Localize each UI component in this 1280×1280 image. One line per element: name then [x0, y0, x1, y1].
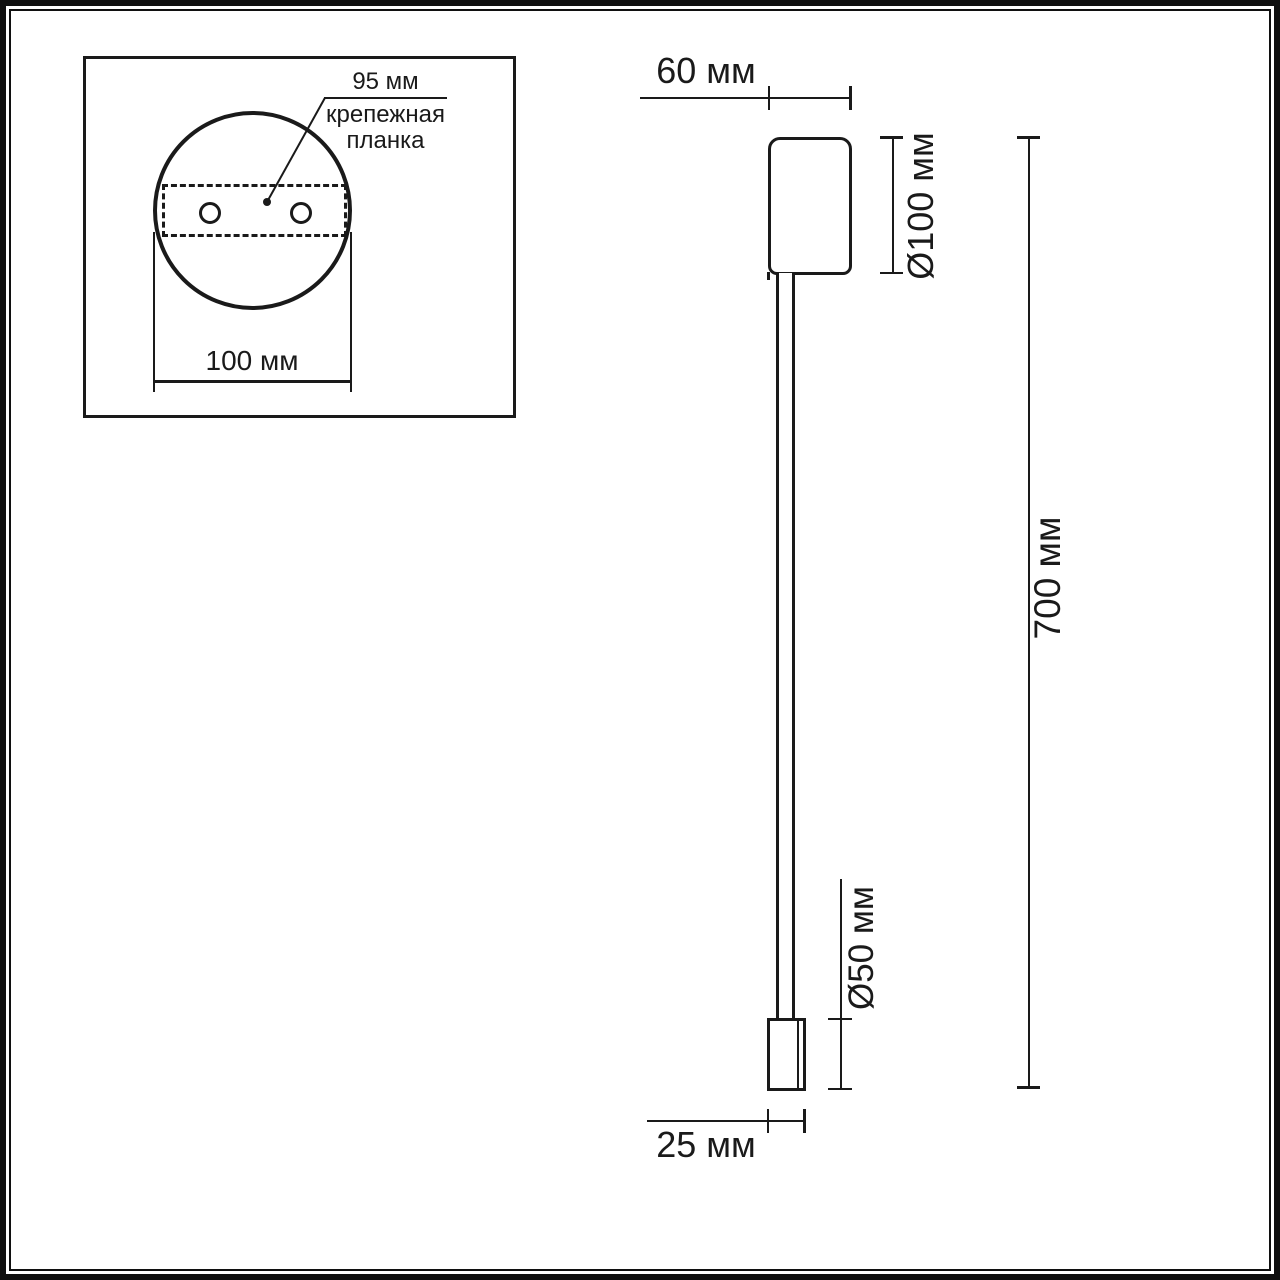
dim-total-height-tick-top — [1017, 136, 1040, 139]
screw-hole-left — [199, 202, 221, 224]
dim-top-depth-line — [640, 97, 851, 100]
dim-head-diameter-line — [892, 137, 894, 274]
screw-hole-right — [290, 202, 312, 224]
dim-top-depth-tick-right — [849, 86, 852, 110]
dim-total-height-tick-bottom — [1017, 1086, 1040, 1089]
dim-total-height-label: 700 мм — [1029, 478, 1067, 678]
mounting-bar-caption: крепежная планка — [312, 102, 459, 155]
dim-tip-width-tick-right — [803, 1109, 806, 1133]
dim-plate-width-line — [153, 380, 351, 383]
mounting-bar-dashed-outline — [162, 184, 347, 237]
dim-top-depth-tick-left — [768, 86, 771, 110]
lamp-head-lip — [767, 272, 770, 280]
lamp-head — [768, 137, 852, 275]
dim-tip-diameter-tick-bottom — [828, 1088, 852, 1091]
mounting-bar-caption-line2: планка — [312, 128, 459, 154]
dim-head-diameter-label: Ø100 мм — [902, 121, 940, 291]
lamp-rod — [776, 273, 795, 1020]
dim-plate-width-label: 100 мм — [153, 347, 351, 375]
dim-tip-width-line — [647, 1120, 805, 1123]
lamp-tip-edge-line — [797, 1021, 800, 1088]
dim-top-depth-label: 60 мм — [611, 53, 801, 89]
lamp-tip — [767, 1018, 806, 1091]
dim-plate-span-label: 95 мм — [324, 70, 447, 94]
technical-drawing-page: 95 мм крепежная планка 100 мм 60 мм Ø100… — [0, 0, 1280, 1280]
mounting-bar-caption-line1: крепежная — [312, 102, 459, 128]
leader-line-horizontal — [324, 97, 447, 99]
dim-tip-width-label: 25 мм — [611, 1127, 801, 1163]
dim-tip-diameter-label: Ø50 мм — [844, 868, 880, 1028]
